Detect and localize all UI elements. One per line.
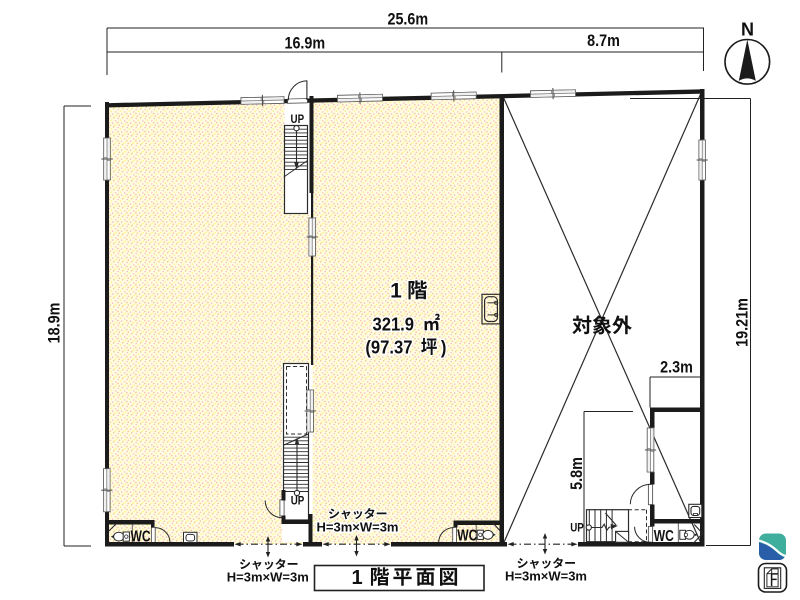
svg-text:18.9m: 18.9m <box>46 303 64 344</box>
svg-text:8.7m: 8.7m <box>587 32 620 50</box>
svg-text:WC: WC <box>130 527 150 545</box>
svg-text:1: 1 <box>390 280 402 303</box>
svg-text:16.9m: 16.9m <box>284 35 325 53</box>
svg-text:25.6m: 25.6m <box>387 11 428 29</box>
svg-text:UP: UP <box>291 113 305 126</box>
svg-text:WC: WC <box>457 526 477 544</box>
svg-text:1: 1 <box>351 567 362 589</box>
svg-text:321.9: 321.9 <box>372 313 414 334</box>
svg-text:H=3m×W=3m: H=3m×W=3m <box>227 570 309 585</box>
svg-text:5.8m: 5.8m <box>568 457 586 490</box>
svg-text:H=3m×W=3m: H=3m×W=3m <box>316 520 398 535</box>
svg-text:WC: WC <box>654 527 674 545</box>
svg-text:(97.37: (97.37 <box>365 336 412 357</box>
svg-text:UP: UP <box>291 495 305 508</box>
svg-text:H=3m×W=3m: H=3m×W=3m <box>505 569 587 584</box>
svg-text:2.3m: 2.3m <box>660 359 693 377</box>
svg-text:N: N <box>741 20 754 40</box>
svg-text:): ) <box>441 336 447 357</box>
svg-text:UP: UP <box>570 522 584 535</box>
svg-text:19.21m: 19.21m <box>734 298 752 347</box>
